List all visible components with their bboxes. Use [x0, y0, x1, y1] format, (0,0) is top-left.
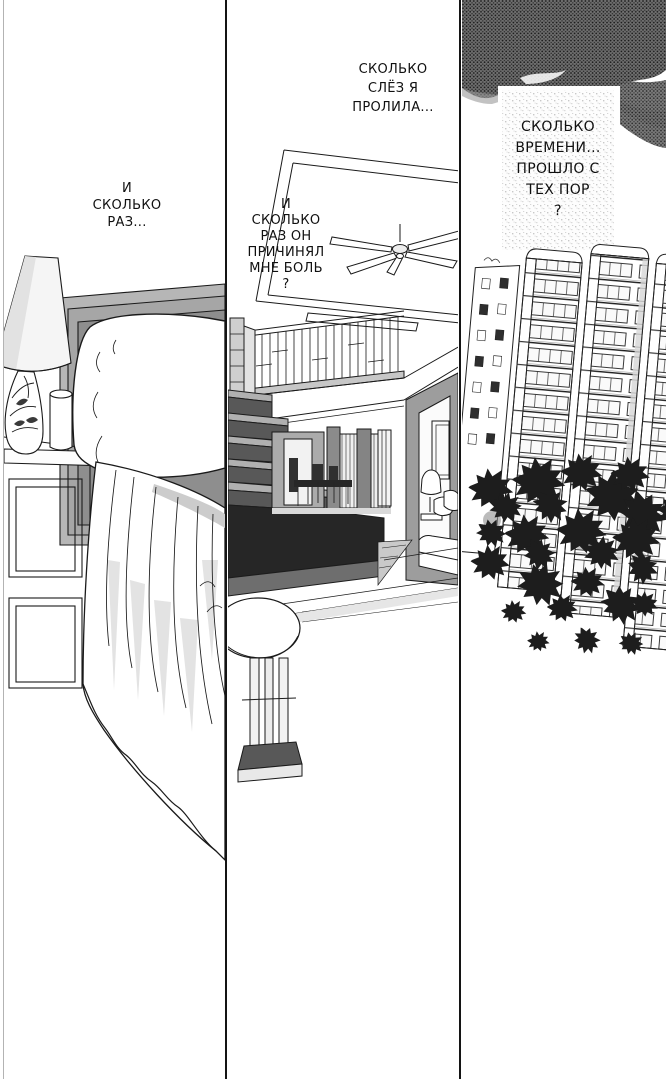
bed-sheets	[83, 462, 225, 860]
right-wall-and-sofa	[378, 373, 458, 585]
panel-bedroom	[4, 0, 225, 1079]
living-room-illustration	[228, 0, 458, 1079]
table-lamp	[4, 256, 72, 454]
ceiling-fan	[330, 224, 458, 275]
balcony-railing	[248, 311, 404, 396]
manga-page: И СКОЛЬКО РАЗ... СКОЛЬКО СЛЁЗ Я ПРОЛИЛА.…	[0, 0, 666, 1079]
narration-living-room-main: И СКОЛЬКО РАЗ ОН ПРИЧИНЯЛ МНЕ БОЛЬ ?	[233, 197, 339, 293]
panel-border-1	[225, 0, 227, 1079]
panel-border-2	[459, 0, 461, 1079]
narration-living-room-top: СКОЛЬКО СЛЁЗ Я ПРОЛИЛА...	[338, 60, 448, 117]
dining-area	[272, 427, 391, 514]
apartment-buildings	[462, 234, 666, 651]
bedroom-illustration	[4, 0, 225, 1079]
panel-living-room	[228, 0, 458, 1079]
narration-bedroom: И СКОЛЬКО РАЗ...	[72, 180, 182, 231]
round-table	[228, 598, 302, 782]
narration-city: СКОЛЬКО ВРЕМЕНИ... ПРОШЛО С ТЕХ ПОР ?	[503, 117, 613, 222]
